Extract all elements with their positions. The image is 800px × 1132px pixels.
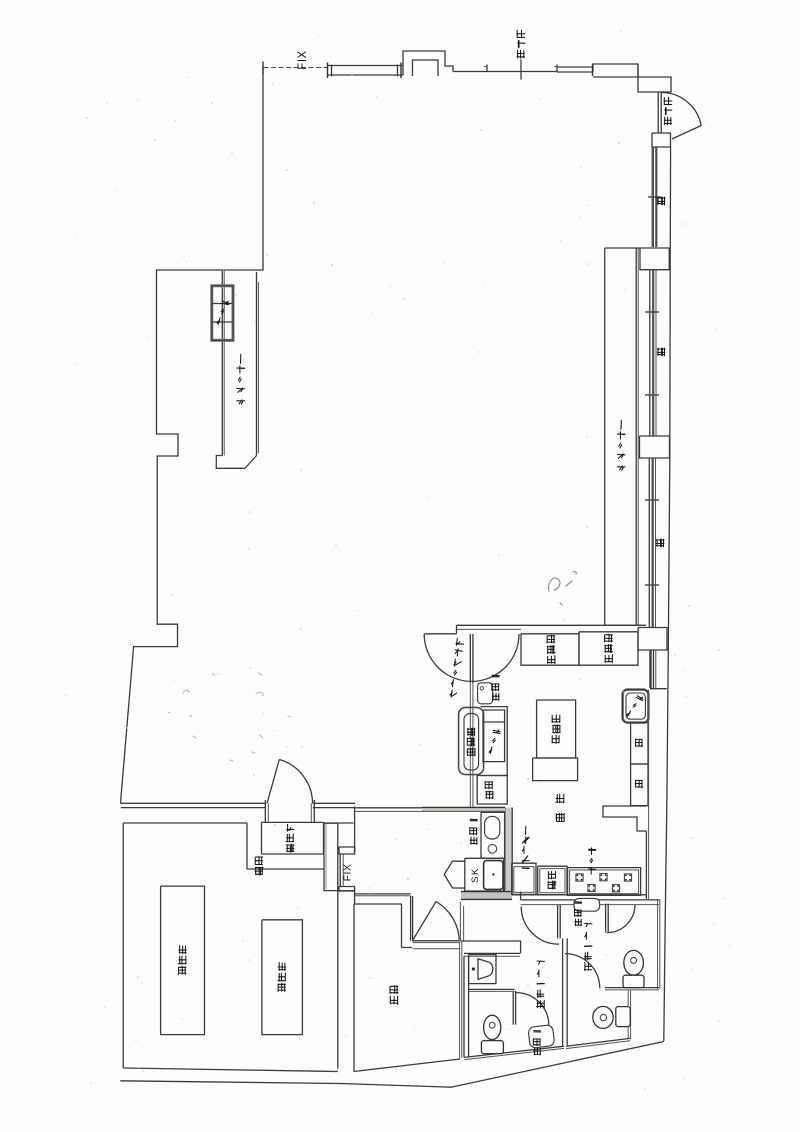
svg-text:FIX: FIX — [297, 50, 309, 69]
svg-text:FIX: FIX — [341, 864, 353, 882]
svg-text:SK: SK — [470, 867, 481, 883]
